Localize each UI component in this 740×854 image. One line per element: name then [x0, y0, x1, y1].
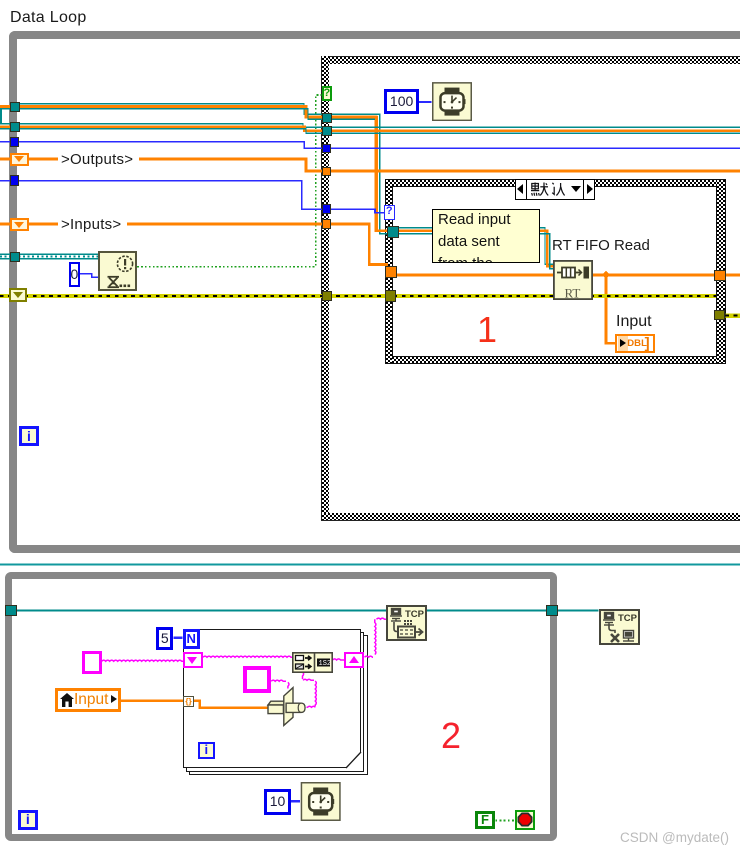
- svg-text:TCP: TCP: [618, 613, 638, 624]
- svg-text:TCP: TCP: [405, 609, 425, 620]
- svg-text:1S2: 1S2: [319, 660, 332, 668]
- svg-text:RT: RT: [565, 286, 581, 301]
